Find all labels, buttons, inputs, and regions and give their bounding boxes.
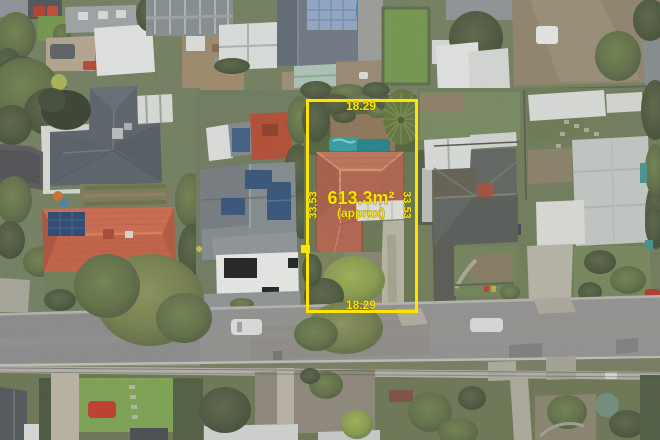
svg-text:33.53: 33.53 (308, 191, 320, 219)
svg-text:613.3m²: 613.3m² (327, 188, 394, 208)
svg-text:33.53: 33.53 (401, 191, 413, 219)
svg-text:(approx): (approx) (337, 206, 385, 220)
svg-text:18.29: 18.29 (346, 298, 376, 312)
svg-text:18.29: 18.29 (346, 99, 376, 113)
